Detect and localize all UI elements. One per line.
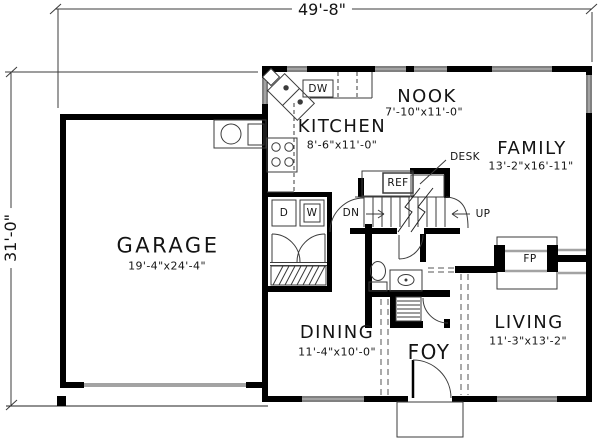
stairs-down-label: DN bbox=[343, 208, 360, 219]
bathroom bbox=[369, 235, 423, 291]
nook-size: 7'-10"x11'-0" bbox=[385, 107, 463, 118]
nook-label: NOOK bbox=[397, 88, 457, 106]
front-door bbox=[408, 360, 452, 403]
toilet bbox=[371, 262, 386, 281]
washer-label: W bbox=[307, 208, 318, 219]
laundry-closet bbox=[270, 200, 327, 266]
garage-entry-steps bbox=[271, 266, 326, 285]
refrigerator-label: REF bbox=[387, 178, 408, 189]
living-label: LIVING bbox=[494, 314, 563, 332]
kitchen-range bbox=[267, 138, 297, 172]
desk-builtin bbox=[411, 160, 446, 197]
fireplace bbox=[494, 237, 592, 289]
stoop bbox=[397, 402, 463, 437]
driveway-line bbox=[6, 396, 268, 406]
dining-size: 11'-4"x10'-0" bbox=[298, 347, 376, 358]
desk-label: DESK bbox=[450, 152, 480, 163]
water-heater-furnace bbox=[214, 120, 266, 148]
dining-label: DINING bbox=[300, 324, 374, 342]
floor-plan-drawing bbox=[0, 0, 600, 439]
foyer-closet bbox=[396, 297, 448, 323]
family-label: FAMILY bbox=[497, 140, 567, 158]
living-size: 11'-3"x13'-2" bbox=[489, 336, 567, 347]
stair-rail bbox=[446, 197, 468, 228]
stairs-up-label: UP bbox=[476, 209, 491, 220]
floor-plan: 49'-8" 31'-0" GARAGE 19'-4"x24'-4" KITCH… bbox=[0, 0, 600, 439]
garage-door bbox=[84, 383, 246, 387]
dishwasher-label: DW bbox=[308, 84, 327, 95]
kitchen-corner-sink bbox=[263, 69, 315, 121]
bath-door-swing bbox=[399, 235, 423, 259]
overall-depth-dimension: 31'-0" bbox=[3, 208, 19, 268]
dashed-dividers bbox=[381, 268, 468, 395]
garage-size: 19'-4"x24'-4" bbox=[128, 261, 206, 272]
kitchen-size: 8'-6"x11'-0" bbox=[307, 140, 377, 151]
dryer-label: D bbox=[280, 208, 289, 219]
foyer-label: FOY bbox=[408, 342, 451, 362]
overall-width-dimension: 49'-8" bbox=[292, 2, 352, 18]
garage-label: GARAGE bbox=[117, 236, 220, 257]
fireplace-label: FP bbox=[523, 254, 536, 265]
kitchen-label: KITCHEN bbox=[298, 118, 387, 136]
family-size: 13'-2"x16'-11" bbox=[488, 161, 573, 172]
